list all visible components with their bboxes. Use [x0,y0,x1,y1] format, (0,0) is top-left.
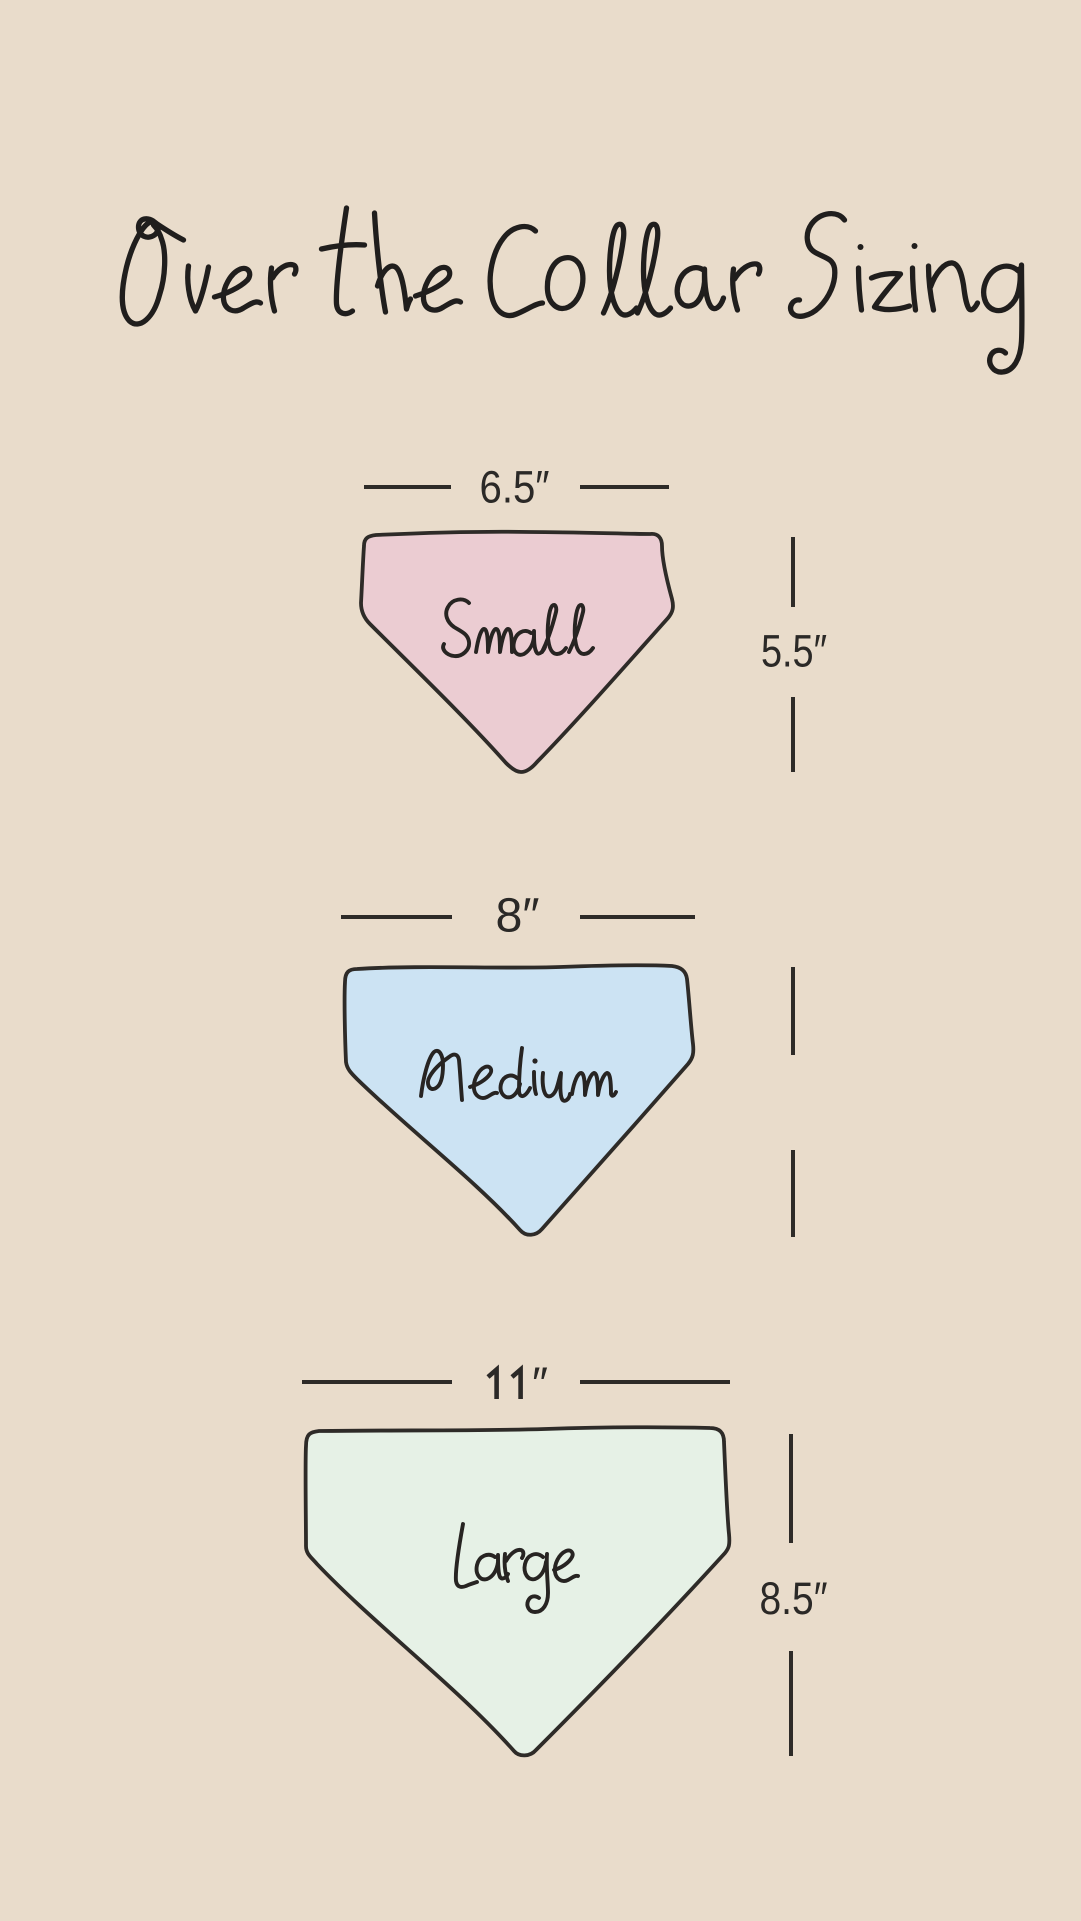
svg-text:5.5″: 5.5″ [761,626,827,677]
svg-text:″: ″ [532,1358,548,1409]
svg-text:6.5″: 6.5″ [480,462,550,513]
svg-text:8″: 8″ [496,890,540,943]
svg-text:8.5″: 8.5″ [760,1573,828,1624]
